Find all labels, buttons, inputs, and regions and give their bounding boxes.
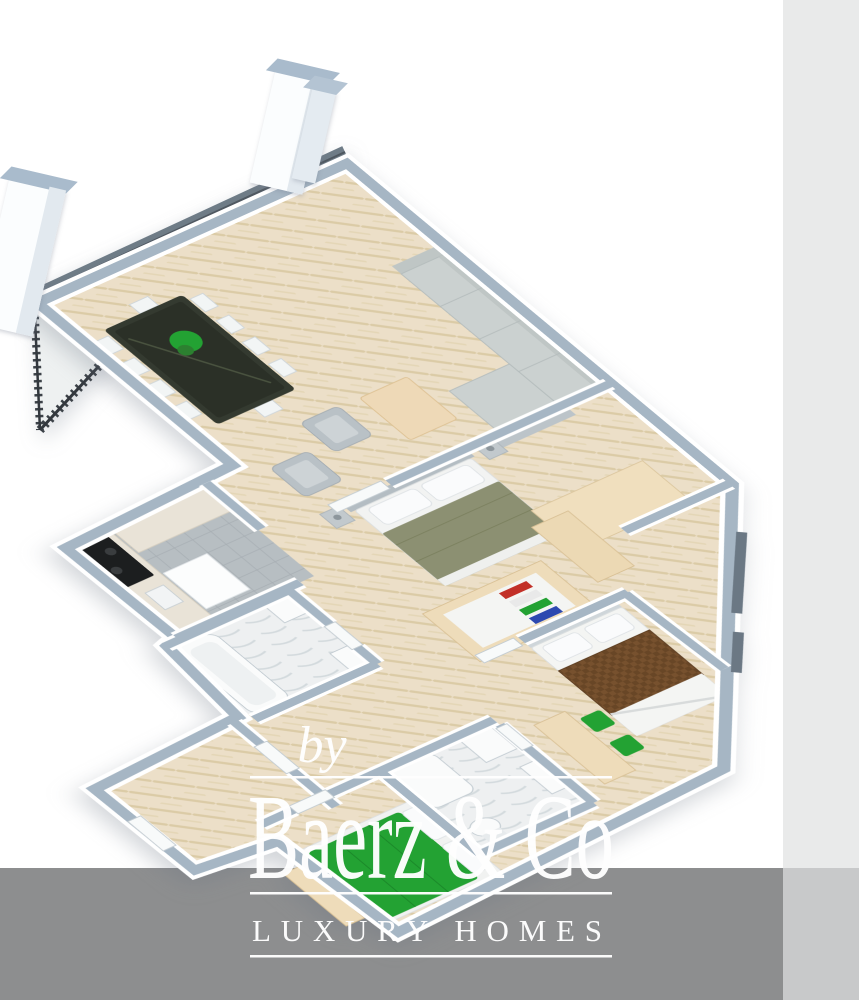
watermark: by Baerz & Co LUXURY HOMES bbox=[0, 0, 859, 1000]
watermark-rule-middle bbox=[250, 892, 612, 895]
watermark-tagline: LUXURY HOMES bbox=[252, 913, 610, 948]
watermark-brand: Baerz & Co bbox=[248, 770, 614, 905]
watermark-prefix: by bbox=[297, 717, 347, 774]
page: by Baerz & Co LUXURY HOMES bbox=[0, 0, 859, 1000]
watermark-rule-bottom bbox=[250, 955, 612, 958]
